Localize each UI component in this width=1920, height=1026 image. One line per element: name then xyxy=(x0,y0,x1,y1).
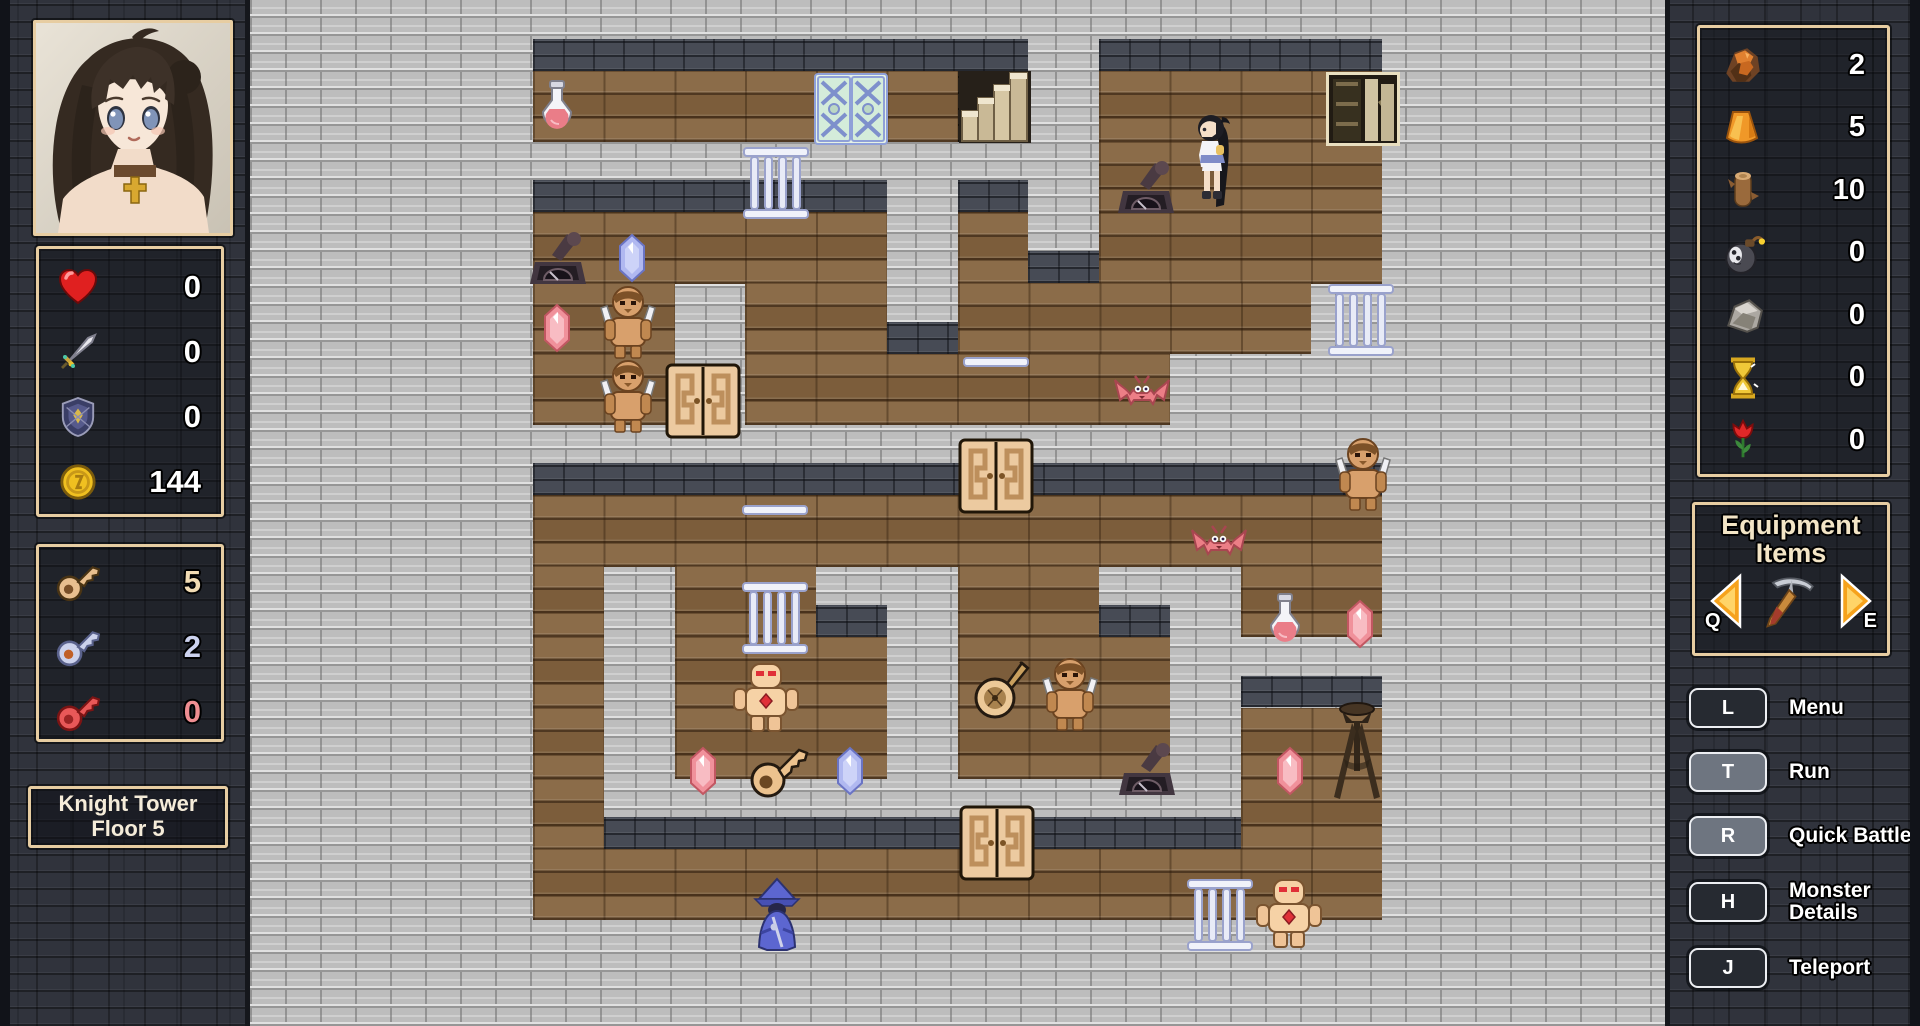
equipment-title-line1: Equipment xyxy=(1695,511,1887,539)
resource-value: 10 xyxy=(1833,174,1865,207)
wall-face xyxy=(1099,605,1170,637)
player-character[interactable] xyxy=(1192,111,1236,215)
key-count-row: 5 xyxy=(39,549,221,614)
wood-log-icon xyxy=(1720,168,1766,212)
tripod-stand[interactable] xyxy=(1324,699,1390,805)
lever[interactable] xyxy=(1116,743,1178,801)
stat-value: 0 xyxy=(184,269,201,305)
wood-floor[interactable] xyxy=(958,212,1029,283)
floor-label-line1: Knight Tower xyxy=(59,792,198,817)
gnoll-monster[interactable] xyxy=(1326,434,1400,514)
shortcut-key-r[interactable]: R xyxy=(1689,816,1767,856)
resource-value: 0 xyxy=(1849,361,1865,394)
bookshelf[interactable] xyxy=(1326,72,1400,146)
shortcut-label: Run xyxy=(1789,761,1830,783)
gnoll-monster[interactable] xyxy=(1033,654,1107,734)
resource-row: 0 xyxy=(1700,284,1887,347)
silver-key-icon xyxy=(55,626,101,668)
wall-face xyxy=(1028,251,1099,283)
wood-floor[interactable] xyxy=(1099,212,1382,283)
stats-panel: 000144 xyxy=(36,246,224,517)
wood-floor[interactable] xyxy=(745,354,1170,425)
stat-value: 144 xyxy=(149,464,201,500)
bat-monster[interactable] xyxy=(1113,372,1171,418)
wall-face xyxy=(604,817,1241,849)
lever[interactable] xyxy=(1115,161,1177,219)
blue-crystal-item[interactable] xyxy=(616,233,648,283)
equipment-prev-key: Q xyxy=(1705,610,1721,633)
equipment-title-line2: Items xyxy=(1695,539,1887,567)
wood-floor[interactable] xyxy=(745,283,887,354)
stat-row: 0 xyxy=(39,319,221,384)
resource-row: 0 xyxy=(1700,347,1887,410)
resource-value: 5 xyxy=(1849,111,1865,144)
golem-monster[interactable] xyxy=(732,661,800,735)
amber-icon xyxy=(1720,108,1766,148)
floor-label-line2: Floor 5 xyxy=(91,817,164,842)
portrait-art xyxy=(36,23,230,233)
shortcut-label: Teleport xyxy=(1789,957,1870,979)
shortcut-list: LMenuTRunRQuick BattleHMonster DetailsJT… xyxy=(1689,688,1917,1012)
stat-row: 0 xyxy=(39,384,221,449)
shortcut-row-j: JTeleport xyxy=(1689,948,1917,988)
equipment-title: Equipment Items xyxy=(1695,511,1887,568)
red-crystal-item[interactable] xyxy=(541,303,573,353)
wall-face xyxy=(533,39,1028,71)
sword-icon xyxy=(55,332,101,372)
wood-floor[interactable] xyxy=(533,71,958,142)
gate[interactable] xyxy=(1328,283,1394,357)
stone-icon xyxy=(1720,296,1766,334)
shortcut-label: Quick Battle xyxy=(1789,825,1912,847)
resource-row: 0 xyxy=(1700,409,1887,472)
equipment-next-button[interactable]: E xyxy=(1839,573,1875,629)
blue-crystal-item[interactable] xyxy=(834,746,866,796)
shortcut-row-r: RQuick Battle xyxy=(1689,816,1917,856)
coin-icon xyxy=(55,463,101,501)
screen-edge-left xyxy=(0,0,10,1026)
wood-door[interactable] xyxy=(959,805,1035,881)
tulip-icon xyxy=(1720,417,1766,463)
screen-edge-right xyxy=(1910,0,1920,1026)
gate[interactable] xyxy=(1187,878,1253,952)
stat-value: 0 xyxy=(184,399,201,435)
gnoll-monster[interactable] xyxy=(591,356,665,436)
gold-key-icon xyxy=(55,561,101,603)
wood-door[interactable] xyxy=(958,438,1034,514)
resource-value: 2 xyxy=(1849,49,1865,82)
ice-door[interactable] xyxy=(814,73,888,145)
hourglass-icon xyxy=(1720,356,1766,400)
potion-item[interactable] xyxy=(539,80,575,136)
shortcut-label: Menu xyxy=(1789,697,1844,719)
wood-floor[interactable] xyxy=(958,566,1100,637)
floor-label: Knight Tower Floor 5 xyxy=(28,786,228,848)
ore-icon xyxy=(1720,44,1766,86)
wood-floor[interactable] xyxy=(958,283,1312,354)
key-count-row: 2 xyxy=(39,614,221,679)
shortcut-label: Monster Details xyxy=(1789,880,1899,924)
gate-rail xyxy=(742,504,808,516)
wall-face xyxy=(816,605,887,637)
character-portrait xyxy=(33,20,233,236)
bomb-icon xyxy=(1720,231,1766,275)
key-count-value: 0 xyxy=(184,694,201,730)
key-item[interactable] xyxy=(746,739,812,801)
shortcut-row-h: HMonster Details xyxy=(1689,880,1917,924)
gnoll-monster[interactable] xyxy=(591,282,665,362)
resource-row: 5 xyxy=(1700,97,1887,160)
gate[interactable] xyxy=(742,581,808,655)
shortcut-key-t[interactable]: T xyxy=(1689,752,1767,792)
red-crystal-item[interactable] xyxy=(1344,599,1376,649)
red-crystal-item[interactable] xyxy=(1274,746,1306,796)
wall-face xyxy=(533,180,887,212)
shortcut-row-l: LMenu xyxy=(1689,688,1917,728)
equipment-panel: Equipment Items Q E xyxy=(1692,502,1890,656)
key-count-value: 5 xyxy=(184,564,201,600)
gate[interactable] xyxy=(743,146,809,220)
heart-icon xyxy=(55,269,101,305)
red-key-icon xyxy=(55,691,101,733)
key-count-value: 2 xyxy=(184,629,201,665)
resource-row: 0 xyxy=(1700,222,1887,285)
wall-face xyxy=(958,180,1029,212)
wood-floor[interactable] xyxy=(533,778,604,849)
shortcut-key-j[interactable]: J xyxy=(1689,948,1767,988)
shortcut-key-l[interactable]: L xyxy=(1689,688,1767,728)
resource-row: 2 xyxy=(1700,34,1887,97)
resource-row: 10 xyxy=(1700,159,1887,222)
shortcut-row-t: TRun xyxy=(1689,752,1917,792)
gate-rail xyxy=(963,356,1029,368)
potion-item[interactable] xyxy=(1267,593,1303,649)
stat-value: 0 xyxy=(184,334,201,370)
pickaxe-icon xyxy=(1762,572,1820,630)
wood-floor[interactable] xyxy=(533,708,604,779)
lute-item[interactable] xyxy=(970,657,1030,719)
game-screen: { "left_sidebar": { "portrait_alt": "cha… xyxy=(0,0,1920,1026)
wall-face xyxy=(887,322,958,354)
wall-face xyxy=(1099,39,1382,71)
shield-icon xyxy=(55,396,101,438)
keys-panel: 520 xyxy=(36,544,224,742)
bat-monster[interactable] xyxy=(1190,522,1248,568)
stat-row: 144 xyxy=(39,449,221,514)
shortcut-key-h[interactable]: H xyxy=(1689,882,1767,922)
mage-monster[interactable] xyxy=(747,877,807,951)
resources-panel: 25100000 xyxy=(1697,25,1890,477)
dungeon-map[interactable] xyxy=(245,0,1670,1026)
wood-floor[interactable] xyxy=(533,566,604,637)
red-crystal-item[interactable] xyxy=(687,746,719,796)
wood-floor[interactable] xyxy=(533,637,604,708)
resource-value: 0 xyxy=(1849,299,1865,332)
wood-door[interactable] xyxy=(665,363,741,439)
resource-value: 0 xyxy=(1849,424,1865,457)
equipment-next-key: E xyxy=(1864,610,1877,633)
lever[interactable] xyxy=(527,232,589,290)
stairs-up[interactable] xyxy=(959,71,1031,143)
equipment-prev-button[interactable]: Q xyxy=(1707,573,1743,629)
stat-row: 0 xyxy=(39,254,221,319)
key-count-row: 0 xyxy=(39,679,221,744)
resource-value: 0 xyxy=(1849,236,1865,269)
golem-monster[interactable] xyxy=(1255,877,1323,951)
